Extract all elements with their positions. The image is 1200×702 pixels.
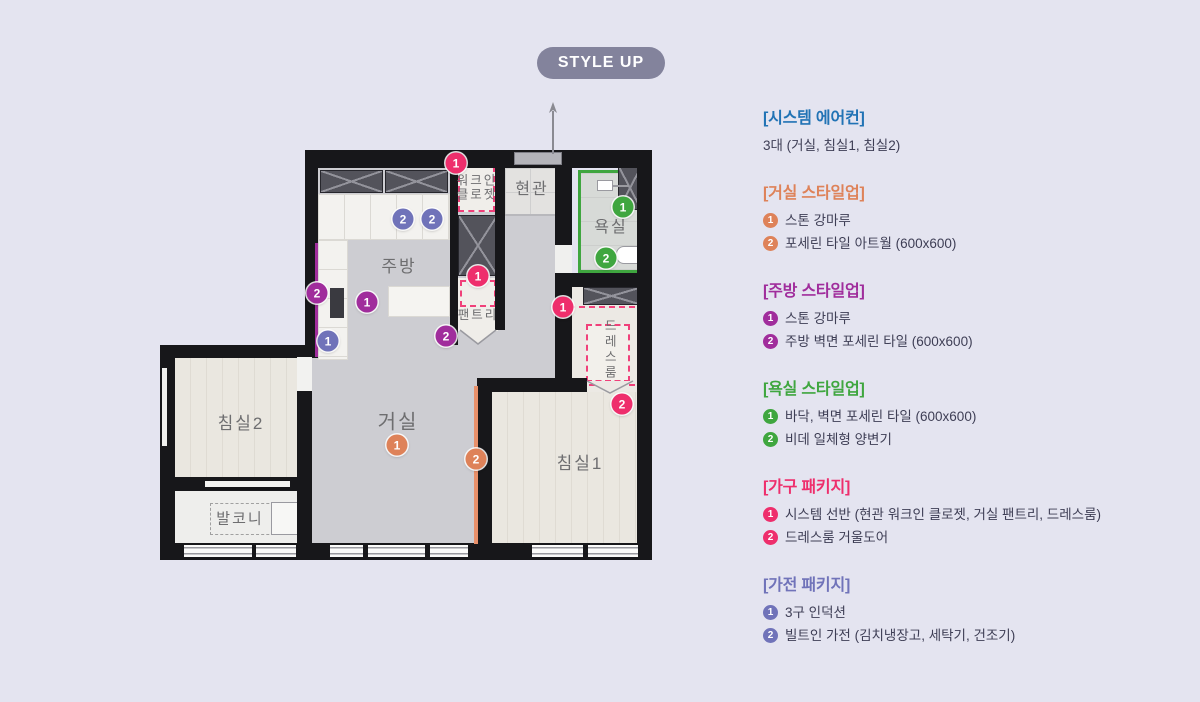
bedroom2-window (162, 368, 167, 446)
legend-section-note: 3대 (거실, 침실1, 침실2) (763, 134, 1193, 158)
floor-living-upper (312, 350, 557, 378)
legend-item: 1바닥, 벽면 포세린 타일 (600x600) (763, 405, 1193, 429)
window-mullion (363, 545, 368, 557)
legend-item: 2포세린 타일 아트월 (600x600) (763, 232, 1193, 256)
legend-section-title: [욕실 스타일업] (763, 375, 1193, 399)
legend-section-title: [시스템 에어컨] (763, 104, 1193, 128)
appliance-marker-2: 2 (422, 209, 443, 230)
legend-item-number-badge: 2 (763, 334, 778, 349)
room-label-walk-in-closet: 워크인 클로젯 (457, 174, 498, 203)
legend-item-label: 시스템 선반 (현관 워크인 클로젯, 거실 팬트리, 드레스룸) (785, 503, 1101, 527)
living-window (330, 545, 468, 557)
legend-item: 1스톤 강마루 (763, 307, 1193, 331)
legend-section-appliance: [가전 패키지]13구 인덕션2빌트인 가전 (김치냉장고, 세탁기, 건조기) (763, 571, 1193, 648)
legend-item-number-badge: 2 (763, 628, 778, 643)
wall (297, 390, 312, 543)
wall (305, 150, 652, 168)
legend-item: 2비데 일체형 양변기 (763, 428, 1193, 452)
legend-item: 1시스템 선반 (현관 워크인 클로젯, 거실 팬트리, 드레스룸) (763, 503, 1193, 527)
dress-closet-x (583, 287, 640, 305)
legend-item-number-badge: 2 (763, 530, 778, 545)
bathroom-door-gap (555, 245, 572, 273)
room-label-entrance: 현관 (515, 181, 548, 199)
legend-item-label: 빌트인 가전 (김치냉장고, 세탁기, 건조기) (785, 624, 1015, 648)
legend-item-number-badge: 1 (763, 311, 778, 326)
kitchen-marker-2: 2 (436, 326, 457, 347)
room-label-bedroom2: 침실2 (218, 414, 265, 434)
entry-arrow-icon (547, 102, 559, 154)
legend-section-title: [거실 스타일업] (763, 179, 1193, 203)
legend-item: 13구 인덕션 (763, 601, 1193, 625)
legend-item-number-badge: 1 (763, 507, 778, 522)
legend-item-label: 비데 일체형 양변기 (785, 428, 892, 452)
wall (637, 150, 652, 560)
closet-x (320, 170, 383, 193)
balcony-window (184, 545, 296, 557)
legend-item-label: 스톤 강마루 (785, 209, 851, 233)
bathroom-sink-counter-line (613, 185, 629, 187)
legend-item: 2빌트인 가전 (김치냉장고, 세탁기, 건조기) (763, 624, 1193, 648)
legend-item: 2주방 벽면 포세린 타일 (600x600) (763, 330, 1193, 354)
legend-section-living: [거실 스타일업]1스톤 강마루2포세린 타일 아트월 (600x600) (763, 179, 1193, 256)
legend-item: 1스톤 강마루 (763, 209, 1193, 233)
appliance-marker-1: 1 (318, 331, 339, 352)
floor-living (312, 378, 477, 543)
legend-item-number-badge: 2 (763, 236, 778, 251)
legend-section-title: [가구 패키지] (763, 473, 1193, 497)
legend-item-label: 주방 벽면 포세린 타일 (600x600) (785, 330, 973, 354)
bathroom-sink (597, 180, 613, 191)
room-label-bedroom1: 침실1 (557, 454, 604, 474)
window-mullion (425, 545, 430, 557)
legend-item-number-badge: 2 (763, 432, 778, 447)
window-mullion (252, 545, 256, 557)
legend-item-label: 바닥, 벽면 포세린 타일 (600x600) (785, 405, 976, 429)
legend-item-number-badge: 1 (763, 213, 778, 228)
pantry-door-icon (458, 329, 498, 346)
furniture-marker-1: 1 (553, 297, 574, 318)
style-legend: [시스템 에어컨]3대 (거실, 침실1, 침실2)[거실 스타일업]1스톤 강… (763, 104, 1193, 669)
living-marker-1: 1 (387, 435, 408, 456)
room-label-living-room: 거실 (378, 412, 419, 435)
entrance-step-line (505, 214, 555, 216)
furniture-marker-1: 1 (446, 153, 467, 174)
legend-section-kitchen: [주방 스타일업]1스톤 강마루2주방 벽면 포세린 타일 (600x600) (763, 277, 1193, 354)
kitchen-marker-2: 2 (307, 283, 328, 304)
kitchen-marker-1: 1 (357, 292, 378, 313)
legend-item-number-badge: 1 (763, 605, 778, 620)
wall (477, 378, 587, 392)
legend-item-label: 드레스룸 거울도어 (785, 526, 888, 550)
legend-section-bath: [욕실 스타일업]1바닥, 벽면 포세린 타일 (600x600)2비데 일체형… (763, 375, 1193, 452)
cooktop (330, 288, 344, 318)
dress-room-door-icon (585, 380, 635, 395)
room-label-balcony: 발코니 (216, 510, 263, 527)
bath-marker-2: 2 (596, 248, 617, 269)
wall (555, 273, 652, 287)
legend-item-label: 스톤 강마루 (785, 307, 851, 331)
kitchen-island (388, 286, 450, 317)
appliance-marker-2: 2 (393, 209, 414, 230)
room-label-kitchen: 주방 (381, 257, 416, 277)
legend-item-label: 3구 인덕션 (785, 601, 846, 625)
legend-section-title: [주방 스타일업] (763, 277, 1193, 301)
closet-x (385, 170, 448, 193)
room-label-dress-room: 드레스룸 (602, 319, 616, 381)
window-mullion (583, 545, 588, 557)
legend-section-aircon: [시스템 에어컨]3대 (거실, 침실1, 침실2) (763, 104, 1193, 158)
room-label-bathroom: 욕실 (594, 219, 627, 237)
legend-section-furniture: [가구 패키지]1시스템 선반 (현관 워크인 클로젯, 거실 팬트리, 드레스… (763, 473, 1193, 550)
bath-marker-1: 1 (613, 197, 634, 218)
bedroom2-door-gap (297, 357, 312, 391)
furniture-marker-2: 2 (612, 394, 633, 415)
legend-item-label: 포세린 타일 아트월 (600x600) (785, 232, 956, 256)
legend-item-number-badge: 1 (763, 409, 778, 424)
furniture-marker-1: 1 (468, 266, 489, 287)
living-marker-2: 2 (466, 449, 487, 470)
window (205, 481, 290, 487)
legend-section-title: [가전 패키지] (763, 571, 1193, 595)
room-label-pantry: 팬트리 (458, 308, 499, 322)
wall (160, 345, 312, 358)
legend-item: 2드레스룸 거울도어 (763, 526, 1193, 550)
